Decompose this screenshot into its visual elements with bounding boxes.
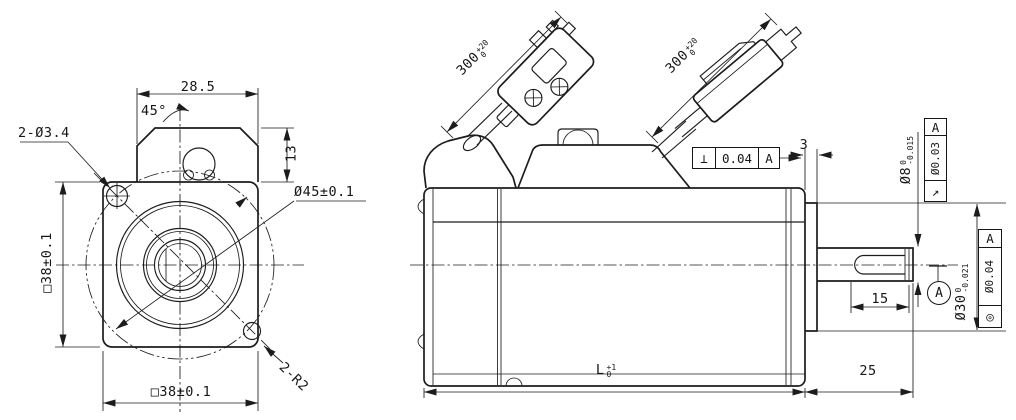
dim-text-boss-protrusion: 3 xyxy=(797,138,811,153)
runout-tolerance: Ø0.03 xyxy=(929,141,942,174)
housing-button-arch xyxy=(563,130,593,145)
motor-body-outline xyxy=(424,188,805,386)
dim-value: L xyxy=(596,363,605,378)
tolerance-stack: 0 -0.021 xyxy=(955,264,970,293)
dsub-latch xyxy=(563,22,576,35)
rear-bump-top xyxy=(418,199,424,214)
drawing-linework xyxy=(0,0,1016,420)
pilot-boss-outline xyxy=(805,203,817,331)
power-cable-line xyxy=(662,129,696,158)
encoder-cable-line xyxy=(477,111,512,145)
encoder-cable-line xyxy=(467,103,502,137)
runout-datum: A xyxy=(925,119,946,135)
plug-detail-line xyxy=(697,44,767,103)
lower-tol: -0.015 xyxy=(907,136,915,165)
concentricity-tolerance-cell: Ø0.04 xyxy=(979,247,1001,305)
perpendicularity-symbol: ⊥ xyxy=(693,148,715,168)
encoder-housing-outline xyxy=(424,135,516,188)
dim-text-chamfer-angle: 45° xyxy=(137,104,171,119)
plug-tip xyxy=(766,21,807,61)
dim-text-shaft-length: 25 xyxy=(846,364,890,379)
tolerance-stack: +1 0 xyxy=(607,364,617,379)
power-housing-outline xyxy=(518,145,690,188)
perpendicularity-datum: A xyxy=(758,148,779,168)
power-cable-line xyxy=(652,121,686,152)
connector-front-ear-left xyxy=(184,170,194,180)
leader-bolt-circle-arrow2 xyxy=(240,197,247,203)
concentricity-symbol: ◎ xyxy=(979,305,1001,327)
gdt-frame-perpendicularity: ⊥ 0.04 A xyxy=(692,147,780,169)
dim-text-body-length: L +1 0 xyxy=(588,360,624,380)
dim-text-mount-holes: 2-Ø3.4 xyxy=(18,126,82,141)
bottom-plug-arc xyxy=(506,378,522,386)
flange-outline xyxy=(103,182,258,347)
terminal-box-outline xyxy=(137,128,258,182)
plug-latch-line xyxy=(703,48,741,79)
dim-text-key-length: 15 xyxy=(860,292,900,307)
dim-value: Ø8 xyxy=(899,167,914,184)
dsub-post xyxy=(546,20,558,32)
side-view xyxy=(410,9,1006,398)
gdt-frame-circular-runout: A Ø0.03 ↗ xyxy=(924,118,947,202)
lower-tol: -0.021 xyxy=(962,264,970,293)
runout-tolerance-cell: Ø0.03 xyxy=(925,135,946,180)
gdt-frame-concentricity: A Ø0.04 ◎ xyxy=(978,229,1002,328)
lower-tol: 0 xyxy=(607,371,612,379)
concentricity-tolerance: Ø0.04 xyxy=(984,260,997,293)
tolerance-stack: 0 -0.015 xyxy=(900,136,915,165)
dim-text-boss-dia: Ø30 0 -0.021 xyxy=(951,246,971,338)
shaft-outline xyxy=(817,248,913,281)
dim-text-box-height: 13 xyxy=(285,139,300,169)
rear-bump-bottom xyxy=(418,334,424,349)
leader-mount-holes xyxy=(68,142,110,188)
connector-front-circle xyxy=(183,148,215,180)
dim-value: Ø30 xyxy=(954,295,969,321)
dim-text-box-width: 28.5 xyxy=(168,80,228,95)
circular-runout-symbol: ↗ xyxy=(925,180,946,201)
dim-text-flange-side: □38±0.1 xyxy=(40,220,55,305)
housing-button xyxy=(558,129,598,145)
dim-text-flange-bottom: □38±0.1 xyxy=(140,385,222,400)
dsub-post xyxy=(530,31,547,48)
dim-text-shaft-dia: Ø8 0 -0.015 xyxy=(896,120,916,200)
dim-text-bolt-circle: Ø45±0.1 xyxy=(294,185,378,200)
perpendicularity-tolerance: 0.04 xyxy=(715,148,758,168)
concentricity-datum: A xyxy=(979,230,1001,247)
drawing-canvas: 28.5 45° 2-Ø3.4 13 Ø45±0.1 □38±0.1 □38±0… xyxy=(0,0,1016,420)
datum-feature-label: A xyxy=(927,281,951,305)
